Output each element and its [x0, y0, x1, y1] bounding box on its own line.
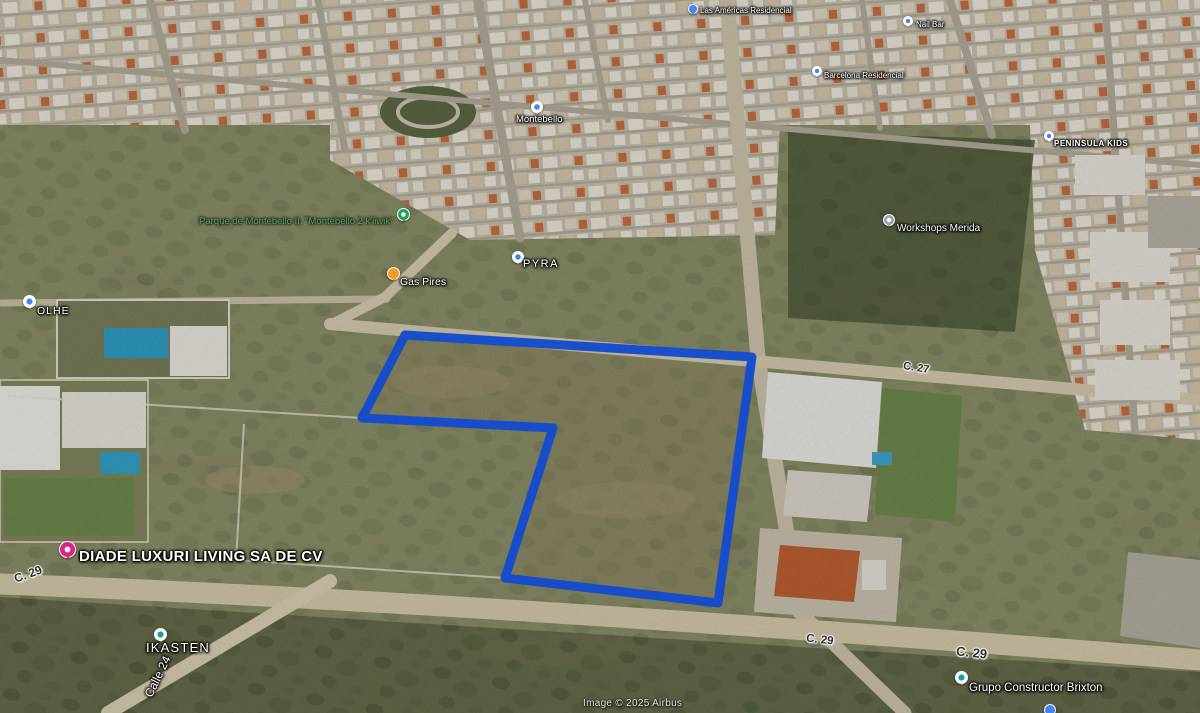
label-montebello[interactable]: Montebello [516, 115, 562, 126]
residencial-pin-icon[interactable] [812, 66, 822, 76]
map-root: Las Américas Residencial Nail Bar Barcel… [0, 0, 1200, 713]
montebello-pin-icon[interactable] [531, 101, 543, 113]
label-residencial[interactable]: Barcelona Residencial [824, 71, 904, 80]
brixton-secondary-pin-icon[interactable] [1044, 704, 1056, 713]
street-label-c29-right: C. 29 [955, 644, 987, 662]
label-nail-bar[interactable]: Nail Bar [916, 20, 944, 29]
workshops-pin-icon[interactable] [883, 214, 895, 226]
label-diade-luxuri[interactable]: DIADE LUXURI LIVING SA DE CV [79, 548, 323, 565]
top-business-pin-icon[interactable] [688, 4, 698, 14]
imagery-attribution: Image © 2025 Airbus [583, 698, 682, 710]
label-pyra[interactable]: PYRA [523, 258, 559, 271]
peninsula-kids-pin-icon[interactable] [1044, 131, 1054, 141]
label-peninsula-kids[interactable]: PENINSULA KIDS [1054, 139, 1128, 148]
nail-bar-pin-icon[interactable] [903, 16, 913, 26]
gas-station-pin-icon[interactable] [387, 267, 400, 280]
olhe-pin-icon[interactable] [23, 295, 36, 308]
park-pin-icon[interactable] [397, 208, 410, 221]
label-park[interactable]: Parque de Montebello II. "Montebello 2 k… [199, 217, 393, 228]
label-grupo-constructor-brixton[interactable]: Grupo Constructor Brixton [969, 682, 1103, 695]
label-olhe[interactable]: OLHE [37, 305, 70, 317]
diade-pin-icon[interactable] [59, 541, 76, 558]
brixton-pin-icon[interactable] [955, 671, 968, 684]
label-gas-pires[interactable]: Gas Pires [400, 276, 446, 288]
label-top-business[interactable]: Las Américas Residencial [700, 6, 792, 15]
map-canvas[interactable] [0, 0, 1200, 713]
street-label-c29-mid: C. 29 [805, 633, 834, 649]
label-ikasten[interactable]: IKASTEN [146, 641, 210, 656]
label-workshops-merida[interactable]: Workshops Merida [897, 223, 980, 235]
